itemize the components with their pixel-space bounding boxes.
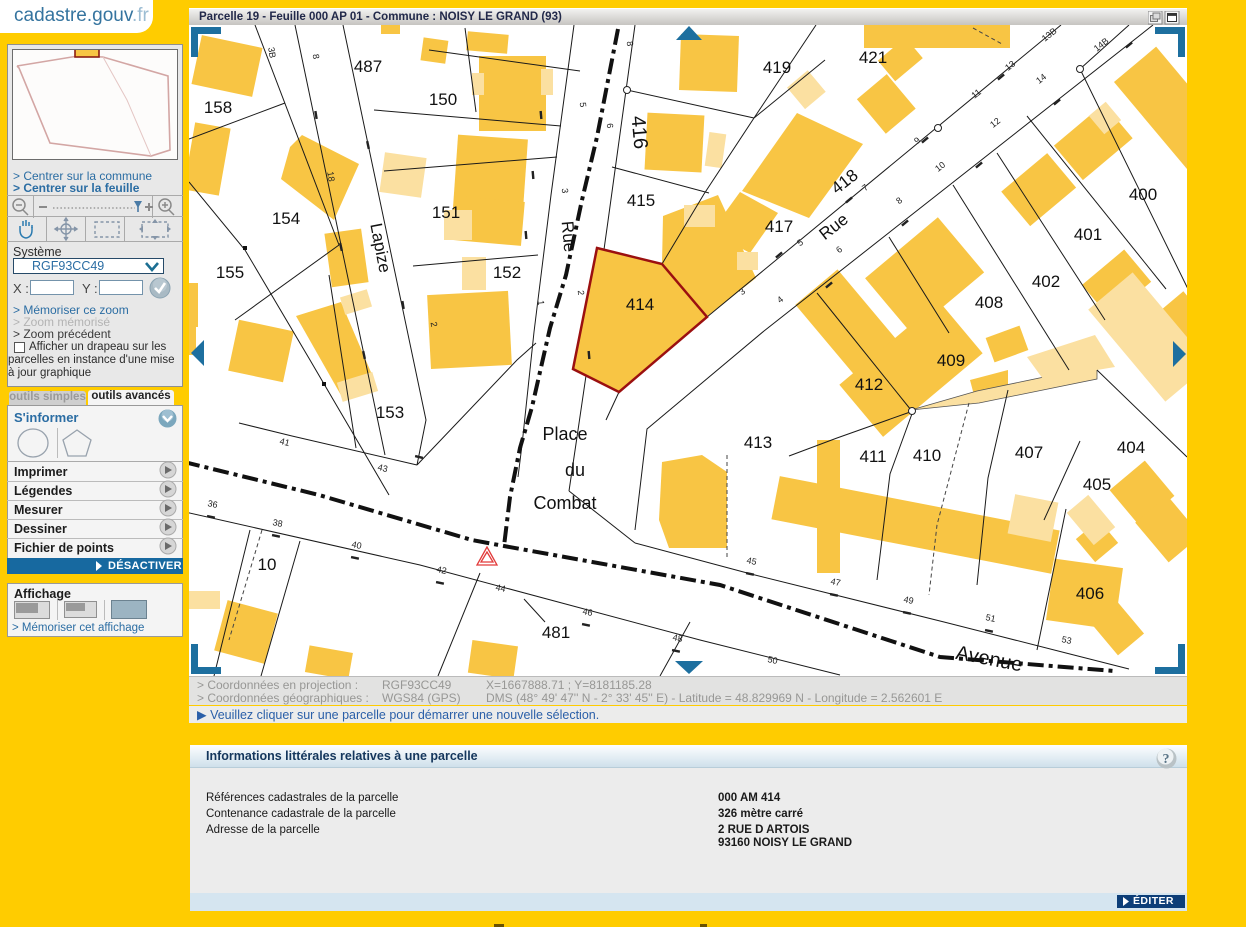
svg-text:416: 416 <box>627 115 652 150</box>
svg-text:8: 8 <box>625 41 635 47</box>
svg-text:6: 6 <box>605 123 615 129</box>
svg-text:5: 5 <box>795 237 805 248</box>
svg-text:5: 5 <box>578 102 588 108</box>
svg-text:153: 153 <box>376 403 404 422</box>
svg-text:417: 417 <box>765 217 793 236</box>
svg-text:150: 150 <box>429 90 457 109</box>
svg-text:402: 402 <box>1032 272 1060 291</box>
svg-text:406: 406 <box>1076 584 1104 603</box>
svg-text:1: 1 <box>536 300 546 306</box>
svg-text:53: 53 <box>1061 634 1073 646</box>
svg-text:38: 38 <box>272 517 284 529</box>
svg-text:3: 3 <box>560 188 570 194</box>
svg-text:51: 51 <box>985 612 997 624</box>
svg-text:411: 411 <box>859 447 886 466</box>
svg-text:14: 14 <box>1034 72 1048 86</box>
svg-text:?: ? <box>1163 752 1170 767</box>
svg-text:155: 155 <box>216 263 244 282</box>
svg-text:421: 421 <box>859 48 887 67</box>
svg-text:40: 40 <box>351 539 363 551</box>
svg-text:10: 10 <box>258 555 277 574</box>
svg-text:405: 405 <box>1083 475 1111 494</box>
svg-text:18: 18 <box>325 171 336 182</box>
svg-text:du: du <box>565 460 585 480</box>
svg-text:Rue: Rue <box>558 220 580 253</box>
svg-text:415: 415 <box>627 191 655 210</box>
svg-text:154: 154 <box>272 209 300 228</box>
svg-text:50: 50 <box>767 654 779 666</box>
svg-text:14B: 14B <box>1092 36 1111 54</box>
svg-text:404: 404 <box>1117 438 1145 457</box>
svg-text:400: 400 <box>1129 185 1157 204</box>
svg-text:Lapize: Lapize <box>366 222 394 275</box>
svg-text:42: 42 <box>436 564 448 576</box>
svg-text:48: 48 <box>672 632 684 644</box>
svg-text:8: 8 <box>894 195 904 206</box>
svg-text:487: 487 <box>354 57 382 76</box>
svg-text:410: 410 <box>913 446 941 465</box>
svg-text:6: 6 <box>834 244 844 255</box>
svg-text:414: 414 <box>626 295 654 314</box>
svg-text:Rue: Rue <box>815 210 851 244</box>
svg-text:Place: Place <box>542 424 587 444</box>
svg-text:Combat: Combat <box>533 493 596 513</box>
svg-text:36: 36 <box>207 498 219 510</box>
svg-text:408: 408 <box>975 293 1003 312</box>
svg-text:152: 152 <box>493 263 521 282</box>
svg-text:41: 41 <box>279 436 291 448</box>
svg-text:407: 407 <box>1015 443 1043 462</box>
svg-text:10: 10 <box>933 160 947 174</box>
svg-text:3: 3 <box>737 286 747 297</box>
svg-text:419: 419 <box>763 58 791 77</box>
svg-text:49: 49 <box>903 594 915 606</box>
svg-text:43: 43 <box>377 462 389 474</box>
svg-text:481: 481 <box>542 623 570 642</box>
svg-text:44: 44 <box>495 582 507 594</box>
svg-text:409: 409 <box>937 351 965 370</box>
svg-text:401: 401 <box>1074 225 1102 244</box>
svg-text:4: 4 <box>775 294 785 305</box>
svg-text:3B: 3B <box>266 46 278 58</box>
svg-text:8: 8 <box>311 53 322 60</box>
svg-text:13B: 13B <box>1040 26 1059 44</box>
svg-text:2: 2 <box>576 290 586 296</box>
svg-text:47: 47 <box>830 576 842 588</box>
svg-text:12: 12 <box>988 116 1002 130</box>
svg-text:413: 413 <box>744 433 772 452</box>
svg-text:151: 151 <box>432 203 460 222</box>
svg-text:46: 46 <box>582 606 594 618</box>
svg-text:158: 158 <box>204 98 232 117</box>
svg-text:412: 412 <box>855 375 883 394</box>
svg-text:Avenue: Avenue <box>954 642 1024 676</box>
svg-text:45: 45 <box>746 555 758 567</box>
